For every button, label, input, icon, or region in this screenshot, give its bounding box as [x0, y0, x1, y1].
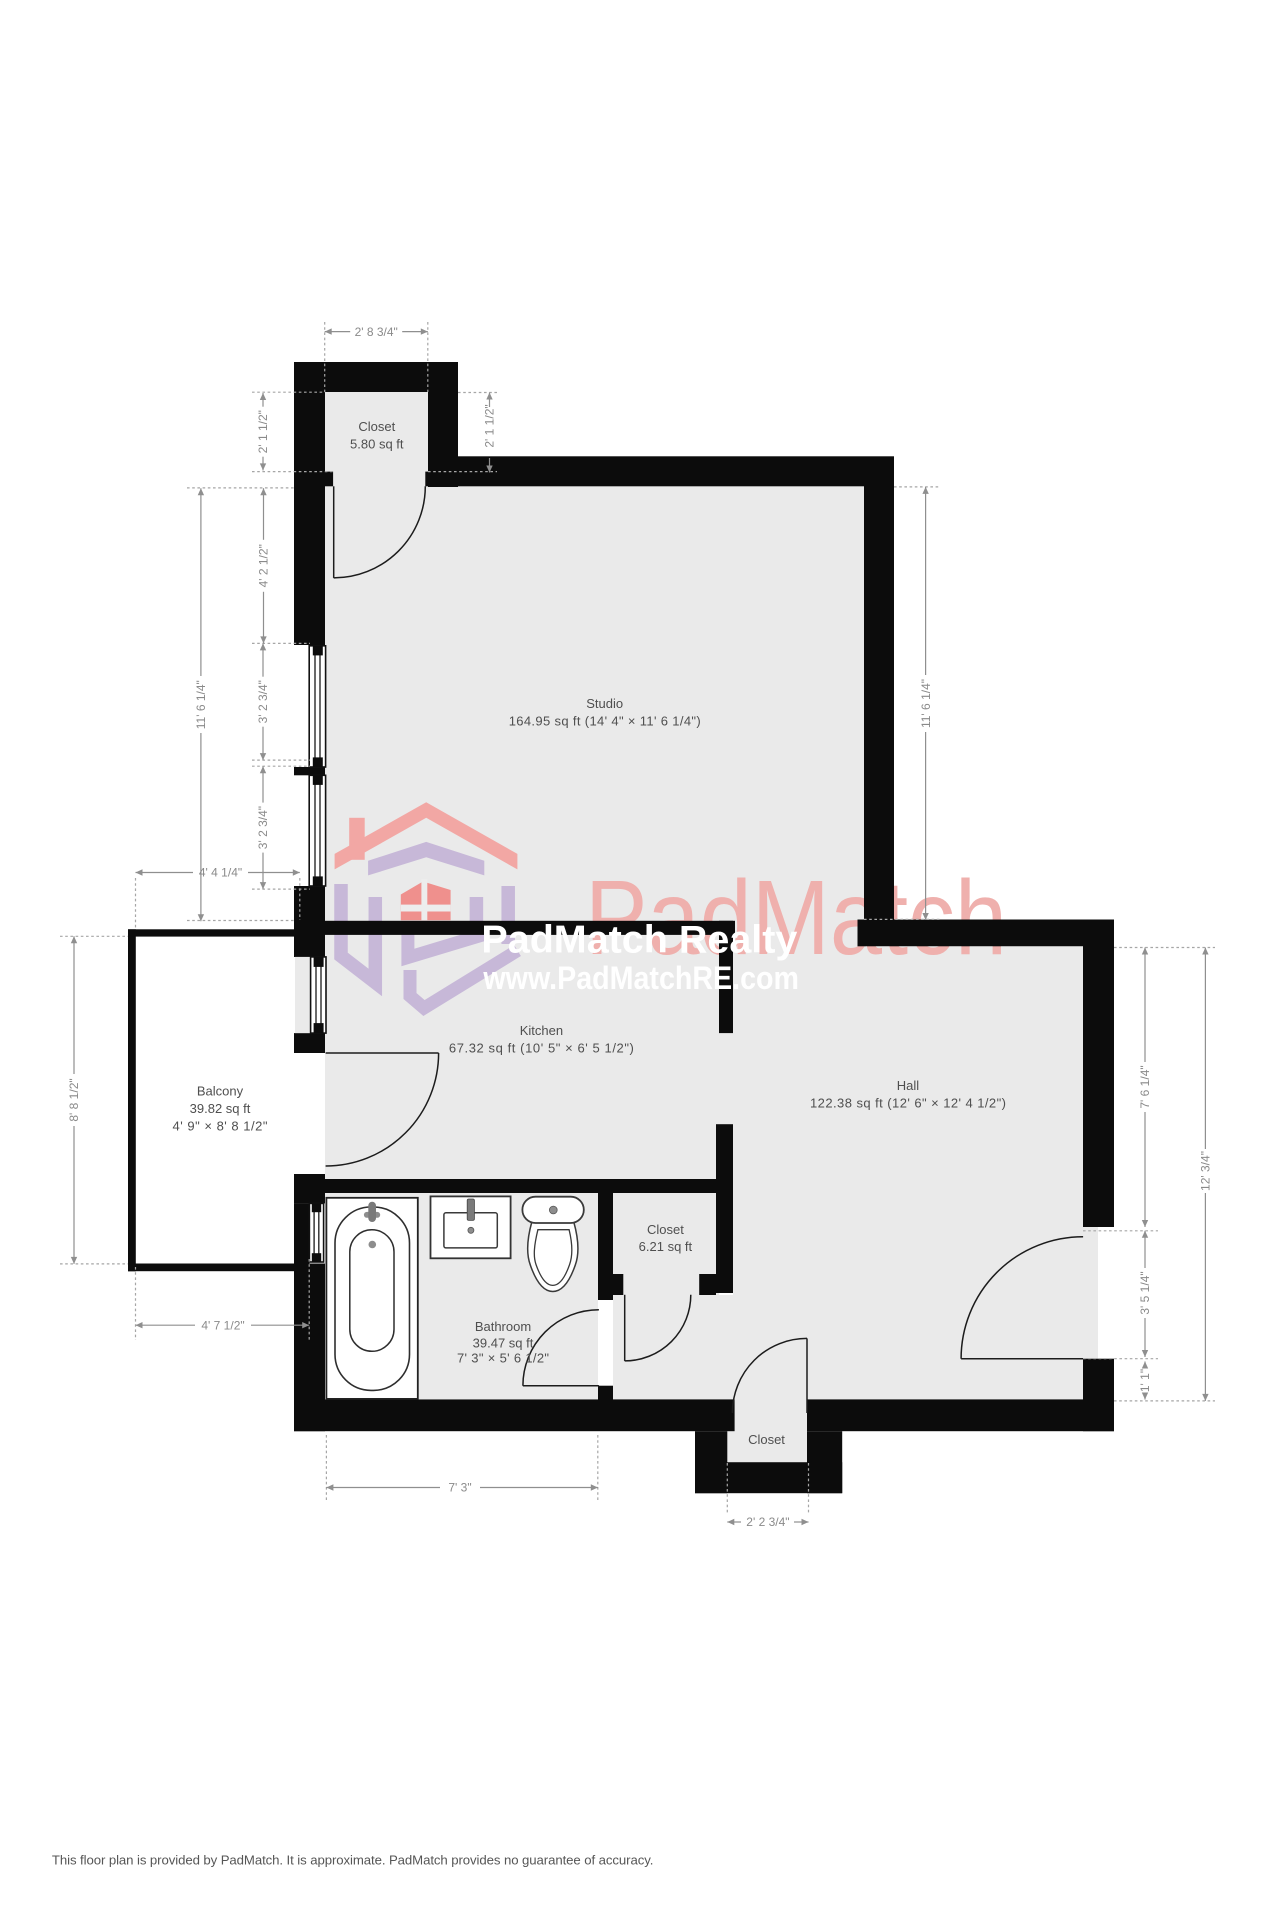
- svg-text:Hall: Hall: [897, 1078, 920, 1093]
- svg-text:4' 7 1/2": 4' 7 1/2": [201, 1318, 244, 1332]
- svg-text:1' 1": 1' 1": [1138, 1369, 1152, 1392]
- svg-text:39.47 sq ft: 39.47 sq ft: [473, 1336, 534, 1351]
- svg-text:2' 8 3/4": 2' 8 3/4": [355, 325, 398, 339]
- svg-text:2' 1 1/2": 2' 1 1/2": [256, 410, 270, 453]
- svg-text:7' 3" × 5' 6 1/2": 7' 3" × 5' 6 1/2": [457, 1351, 549, 1366]
- svg-text:3' 5 1/4": 3' 5 1/4": [1138, 1271, 1152, 1314]
- svg-text:www.PadMatchRE.com: www.PadMatchRE.com: [483, 960, 799, 996]
- svg-text:4' 9" × 8' 8 1/2": 4' 9" × 8' 8 1/2": [173, 1118, 268, 1133]
- svg-text:67.32 sq ft (10' 5" × 6' 5 1/2: 67.32 sq ft (10' 5" × 6' 5 1/2"): [449, 1041, 634, 1056]
- svg-text:11' 6 1/4": 11' 6 1/4": [919, 679, 933, 728]
- svg-text:Kitchen: Kitchen: [520, 1023, 563, 1038]
- svg-text:8' 8 1/2": 8' 8 1/2": [67, 1078, 81, 1121]
- svg-text:PadMatch Realty: PadMatch Realty: [481, 919, 797, 962]
- svg-text:3' 2 3/4": 3' 2 3/4": [256, 806, 270, 849]
- svg-text:122.38 sq ft (12' 6" × 12' 4 1: 122.38 sq ft (12' 6" × 12' 4 1/2"): [810, 1096, 1006, 1111]
- svg-text:2' 1 1/2": 2' 1 1/2": [483, 404, 497, 447]
- svg-text:2' 2 3/4": 2' 2 3/4": [746, 1515, 789, 1529]
- svg-text:Closet: Closet: [647, 1222, 684, 1237]
- svg-text:7' 3": 7' 3": [448, 1481, 471, 1495]
- svg-text:6.21 sq ft: 6.21 sq ft: [639, 1239, 693, 1254]
- svg-text:4' 2 1/2": 4' 2 1/2": [257, 544, 271, 587]
- svg-text:Bathroom: Bathroom: [475, 1319, 531, 1334]
- svg-text:164.95 sq ft (14' 4" × 11' 6 1: 164.95 sq ft (14' 4" × 11' 6 1/4"): [509, 714, 701, 729]
- svg-text:This floor plan is provided by: This floor plan is provided by PadMatch.…: [52, 1853, 654, 1868]
- svg-text:12' 3/4": 12' 3/4": [1199, 1151, 1213, 1191]
- svg-text:3' 2 3/4": 3' 2 3/4": [256, 680, 270, 723]
- svg-text:5.80 sq ft: 5.80 sq ft: [350, 437, 404, 452]
- svg-text:Closet: Closet: [358, 419, 395, 434]
- svg-text:Closet: Closet: [748, 1432, 785, 1447]
- svg-text:Studio: Studio: [586, 696, 623, 711]
- svg-text:4' 4 1/4": 4' 4 1/4": [199, 865, 242, 879]
- svg-text:39.82 sq ft: 39.82 sq ft: [190, 1101, 251, 1116]
- svg-text:7' 6 1/4": 7' 6 1/4": [1138, 1065, 1152, 1108]
- svg-text:11' 6 1/4": 11' 6 1/4": [194, 680, 208, 729]
- svg-text:Balcony: Balcony: [197, 1084, 244, 1099]
